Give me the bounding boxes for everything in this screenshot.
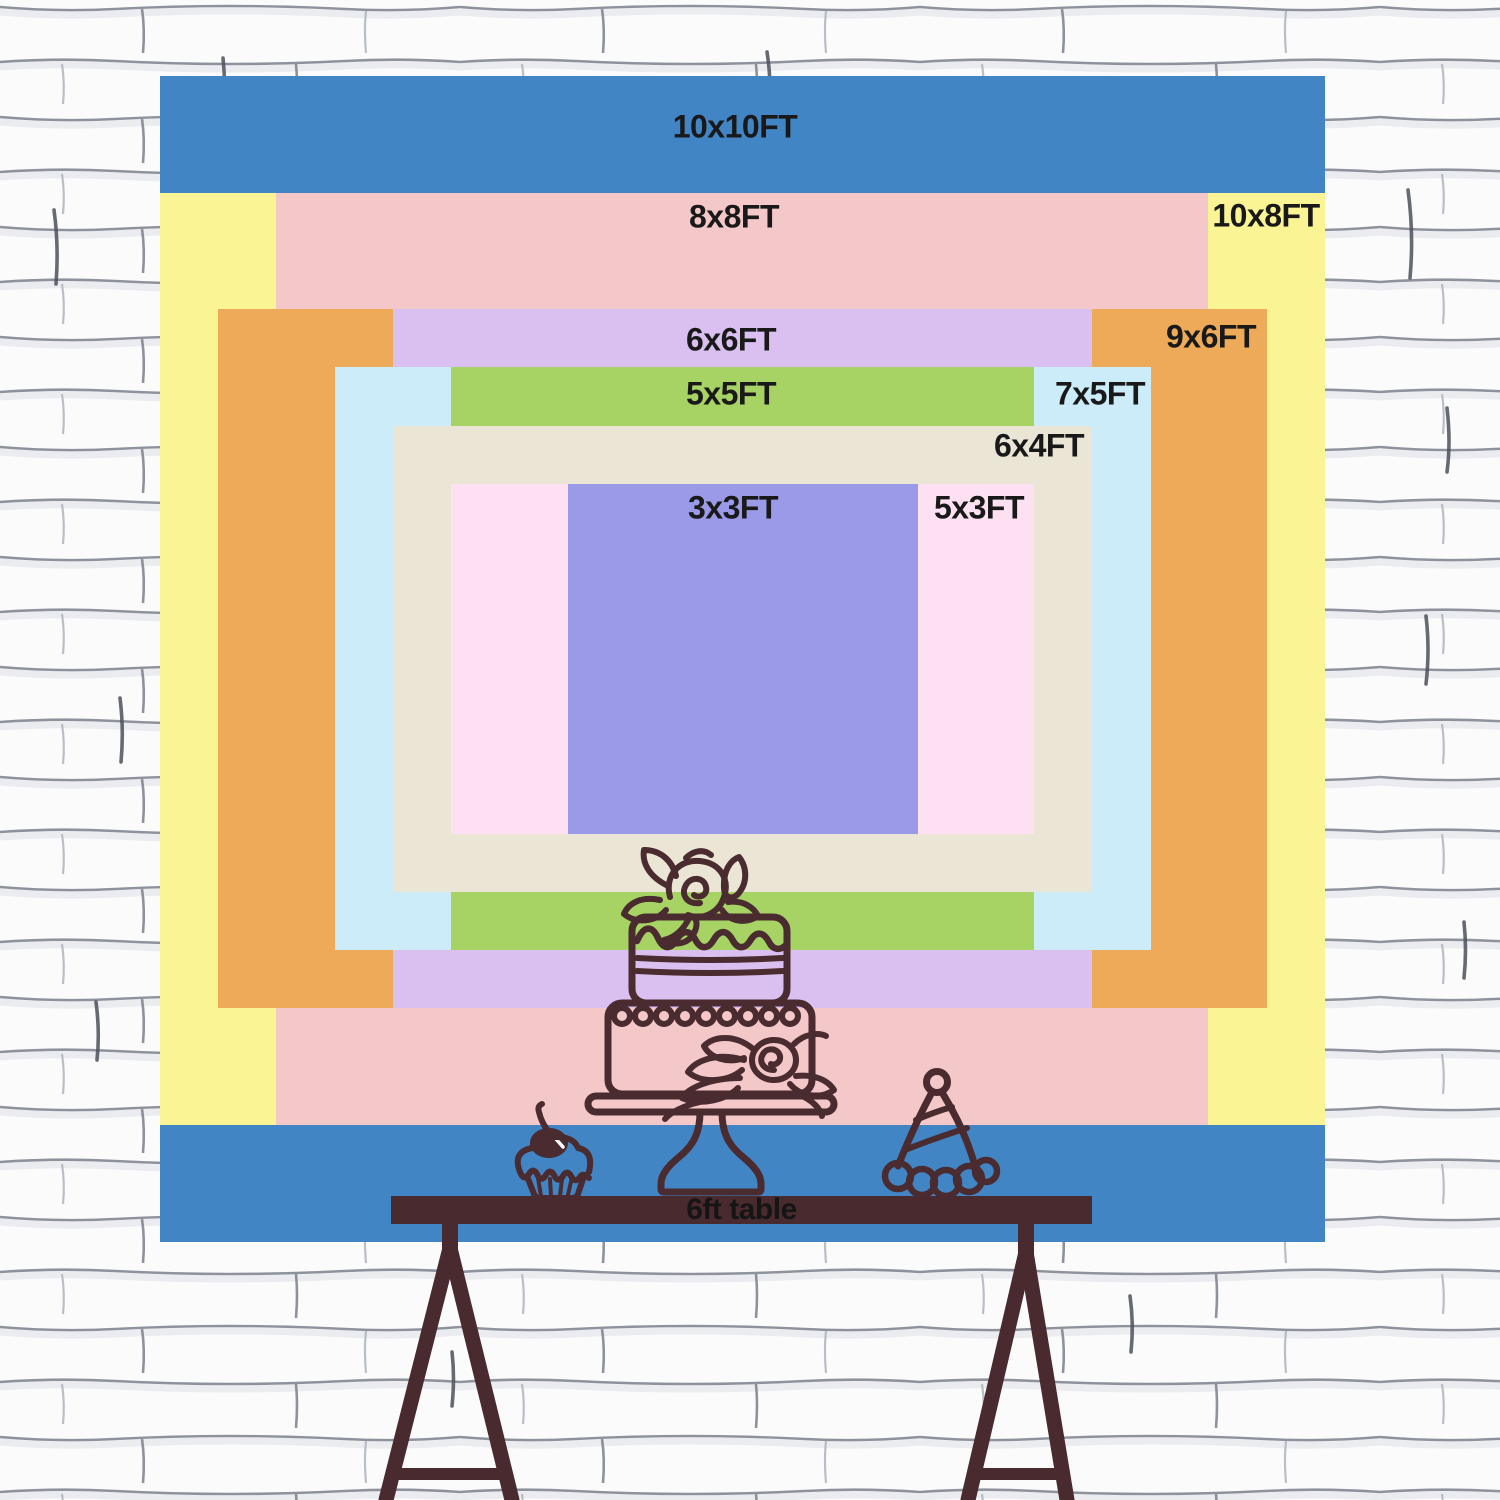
- table-label: 6ft table: [686, 1196, 797, 1224]
- table-legs: [386, 1222, 1067, 1500]
- table-top: 6ft table: [391, 1196, 1092, 1224]
- tiered-cake-icon: [588, 850, 834, 1192]
- cupcake-icon: [518, 1104, 590, 1198]
- party-hat-icon: [885, 1072, 997, 1197]
- dessert-table-illustration: [0, 0, 1500, 1500]
- backdrop-size-chart: 10x10FT 10x8FT 8x8FT 9x6FT 6x6FT 7x5FT 5…: [0, 0, 1500, 1500]
